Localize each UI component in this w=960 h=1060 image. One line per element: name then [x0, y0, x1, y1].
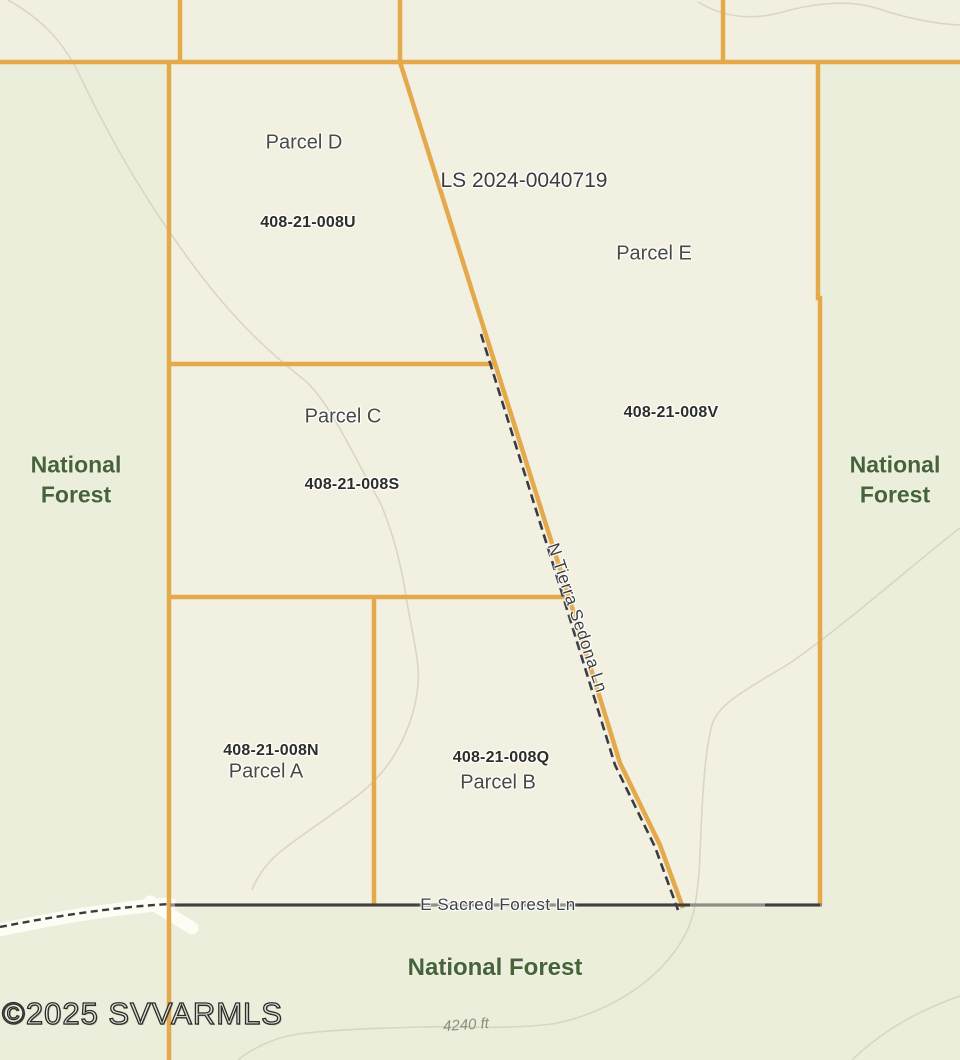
parcel-c-label: Parcel C	[305, 406, 382, 429]
parcel-d-apn: 408-21-008U	[260, 214, 356, 232]
parcel-e-apn: 408-21-008V	[624, 404, 719, 422]
mls-watermark: ©2025 SVVARMLS	[2, 996, 283, 1032]
national-forest-label-south: National Forest	[408, 952, 583, 984]
parcel-map[interactable]: Parcel D 408-21-008U LS 2024-0040719 Par…	[0, 0, 960, 1060]
parcel-d-label: Parcel D	[266, 132, 343, 155]
survey-number-label: LS 2024-0040719	[441, 169, 608, 193]
boundary-east	[818, 62, 820, 905]
parcel-a-apn: 408-21-008N	[223, 742, 319, 760]
national-forest-label-east: National Forest	[835, 450, 955, 511]
parcel-e-label: Parcel E	[616, 243, 692, 266]
parcel-b-label: Parcel B	[460, 772, 536, 795]
national-forest-label-west: National Forest	[16, 450, 136, 511]
contour-elevation-label: 4240 ft	[443, 1015, 490, 1035]
parcel-b-apn: 408-21-008Q	[453, 749, 550, 767]
parcel-a-label: Parcel A	[229, 761, 303, 784]
road-label-sacred-forest: E Sacred Forest Ln	[420, 895, 575, 915]
parcel-c-apn: 408-21-008S	[305, 476, 400, 494]
north-parcels-fill	[0, 0, 960, 62]
